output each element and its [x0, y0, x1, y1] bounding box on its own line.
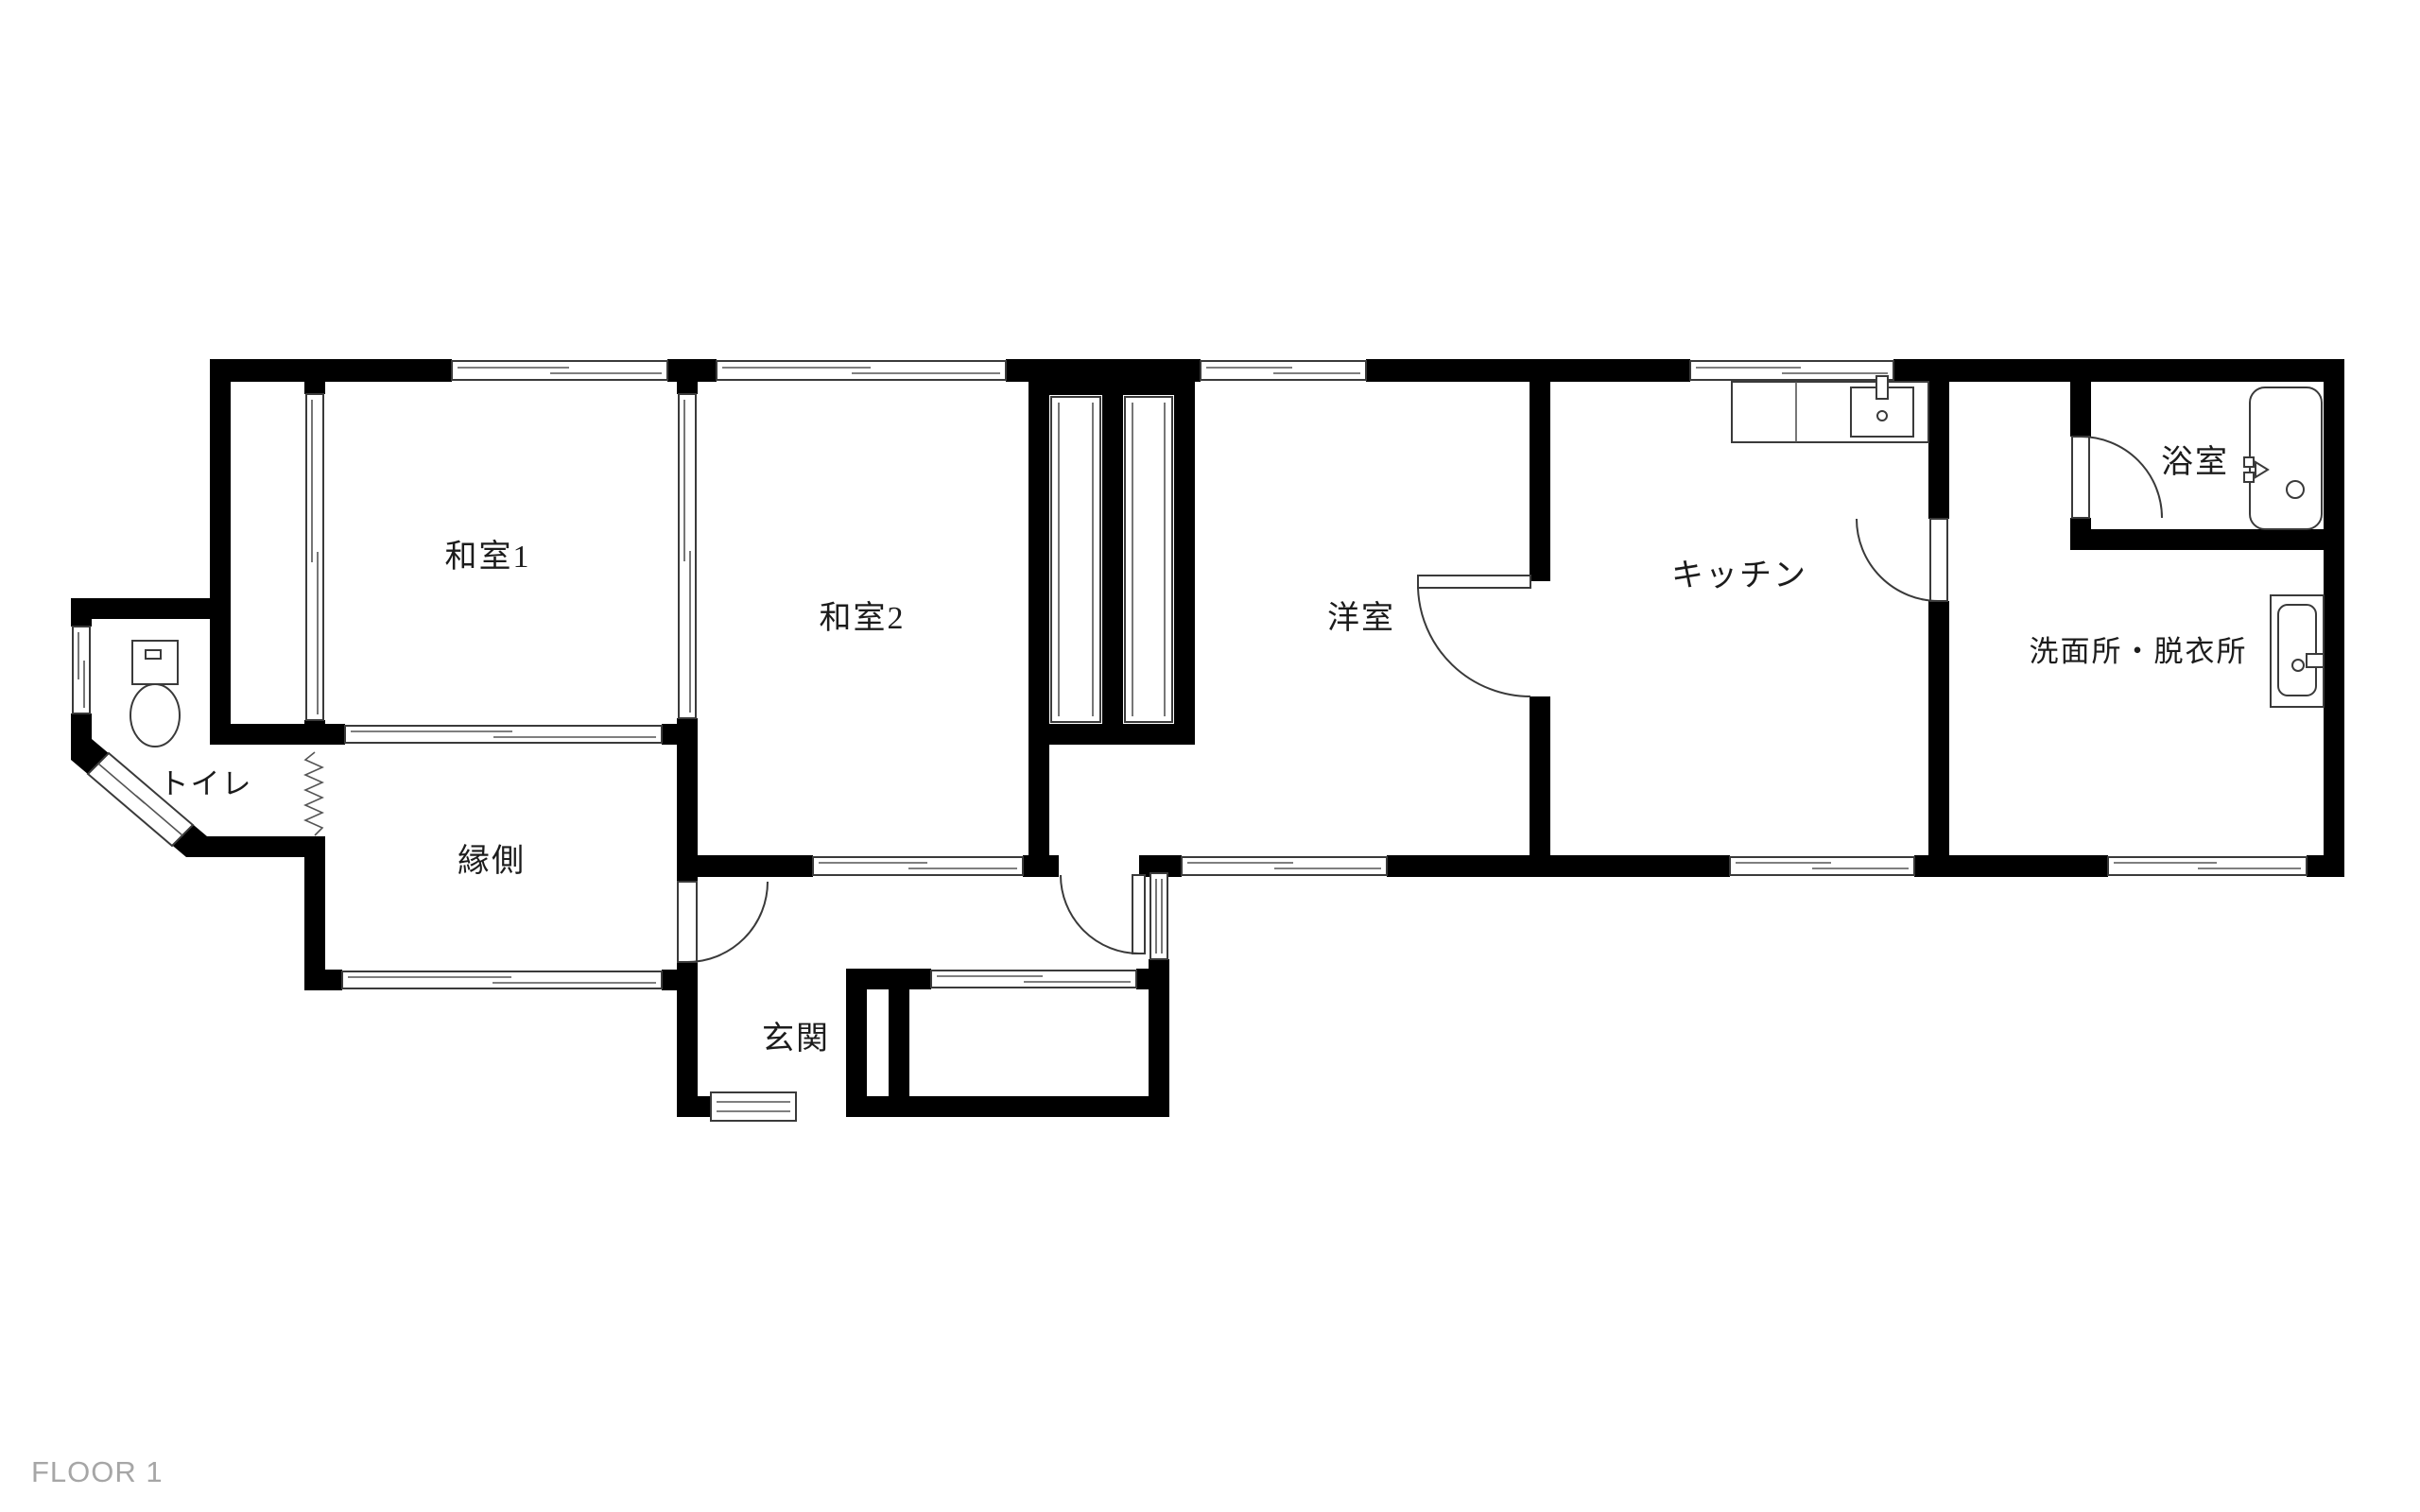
sliding-door [306, 394, 323, 720]
wall [677, 1096, 711, 1117]
floor-plan-drawing: 和室1 和室2 洋室 キッチン 浴室 洗面所・脱衣所 トイレ 縁側 玄関 FLO… [0, 0, 2420, 1512]
wall [1366, 359, 1690, 382]
wall [1028, 382, 1049, 855]
kitchen-sink-icon [1732, 376, 1928, 442]
wall [662, 970, 698, 990]
wall [210, 359, 452, 382]
wall [1530, 696, 1550, 855]
wall [1530, 382, 1550, 581]
wall [1914, 855, 2108, 877]
sliding-door [679, 394, 696, 718]
wall [846, 969, 867, 1117]
window [717, 361, 1006, 380]
wall [1149, 959, 1169, 1117]
window [1182, 857, 1387, 875]
room-label-kitchen: キッチン [1671, 558, 1807, 593]
floor-plan-page: 和室1 和室2 洋室 キッチン 浴室 洗面所・脱衣所 トイレ 縁側 玄関 FLO… [0, 0, 2420, 1512]
door-bathroom [2072, 437, 2162, 518]
door-kitchen [1857, 519, 1947, 601]
room-label-engawa: 縁側 [458, 843, 526, 879]
wall [1387, 855, 1730, 877]
toilet-icon [130, 641, 180, 747]
wall [1023, 855, 1059, 877]
wall [1928, 382, 1949, 519]
door-yoshitsu [1418, 576, 1530, 696]
window [931, 971, 1136, 988]
wall [677, 855, 813, 877]
sliding-door [345, 726, 662, 743]
wall [1006, 359, 1201, 382]
room-label-bathroom: 浴室 [2161, 444, 2229, 480]
wall [1102, 395, 1123, 724]
floor-indicator: FLOOR 1 [31, 1455, 164, 1488]
wall [71, 598, 231, 619]
accordion-door-icon [305, 752, 322, 835]
wall [2324, 359, 2344, 877]
wall [304, 970, 342, 990]
room-label-washroom: 洗面所・脱衣所 [2030, 635, 2248, 668]
wall [1028, 724, 1195, 745]
room-label-genkan: 玄関 [762, 1021, 830, 1057]
room-label-washitsu2: 和室2 [820, 600, 906, 636]
wall [1893, 359, 2344, 382]
room-label-toilet: トイレ [160, 767, 253, 800]
wall [186, 836, 325, 857]
window [342, 971, 662, 988]
wall [71, 598, 92, 627]
wall [1174, 395, 1195, 724]
wall [210, 724, 345, 745]
wall [2070, 529, 2344, 550]
door-engawa-genkan [678, 882, 768, 962]
window [2108, 857, 2307, 875]
room-label-yoshitsu: 洋室 [1327, 600, 1395, 636]
wall [2070, 382, 2091, 437]
wall [304, 372, 325, 394]
window [1690, 361, 1893, 380]
wall [210, 359, 231, 745]
entrance-door [711, 1092, 796, 1121]
window [813, 857, 1023, 875]
wall [846, 1096, 1169, 1117]
window [1201, 361, 1366, 380]
wall [677, 372, 698, 394]
washbasin-icon [2271, 595, 2324, 707]
room-label-washitsu1: 和室1 [445, 539, 531, 575]
bathtub-icon [2244, 387, 2322, 529]
window [73, 627, 90, 713]
window [1150, 873, 1167, 959]
wall [304, 849, 325, 990]
window [452, 361, 667, 380]
wall [1928, 601, 1949, 855]
wall [1028, 380, 1195, 395]
window [1730, 857, 1914, 875]
door-genkan-hall [1061, 875, 1145, 954]
wall [889, 989, 909, 1096]
